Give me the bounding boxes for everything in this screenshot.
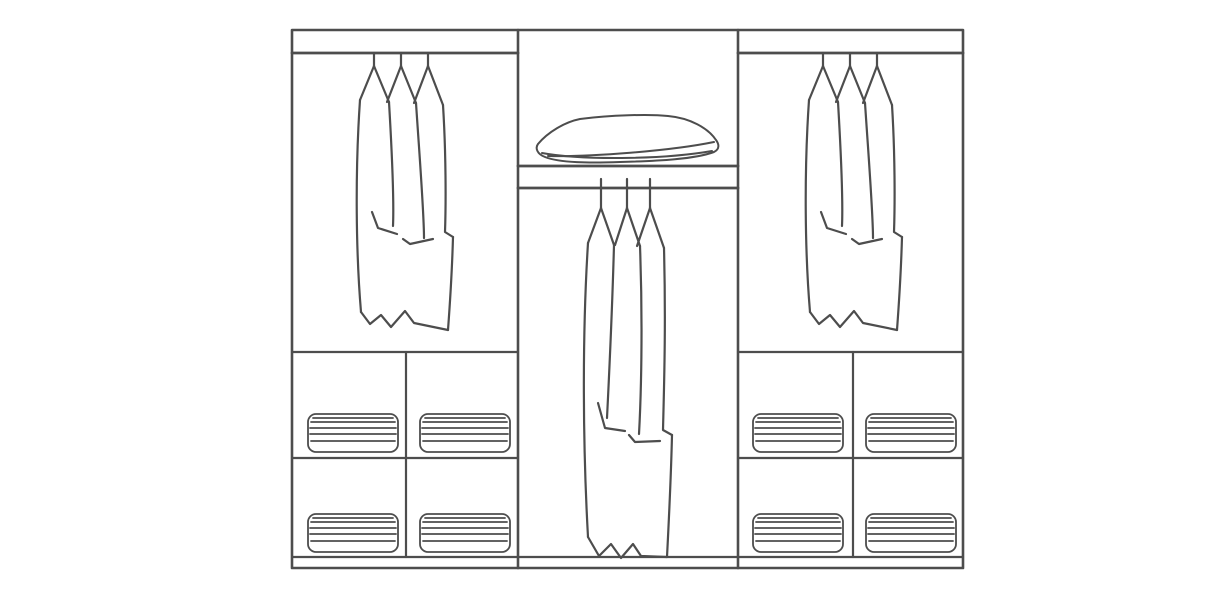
linen-stack — [420, 514, 510, 552]
right-hanging-garments — [806, 53, 902, 330]
wardrobe-frame — [292, 30, 963, 568]
section-right-bay — [738, 53, 963, 557]
linen-stack — [308, 414, 398, 452]
left-cubby-grid — [292, 352, 518, 557]
linen-stack — [308, 514, 398, 552]
left-hanging-garments — [357, 53, 453, 330]
middle-hanging-garments — [584, 179, 672, 558]
linen-stack — [753, 514, 843, 552]
wardrobe-diagram — [0, 0, 1228, 614]
linen-stack — [420, 414, 510, 452]
pillow — [537, 115, 719, 162]
section-middle-bay — [518, 115, 738, 558]
right-cubby-grid — [738, 352, 963, 557]
linen-stack — [866, 414, 956, 452]
wardrobe-svg — [0, 0, 1228, 614]
linen-stack — [866, 514, 956, 552]
section-left-bay — [292, 53, 518, 557]
linen-stack — [753, 414, 843, 452]
